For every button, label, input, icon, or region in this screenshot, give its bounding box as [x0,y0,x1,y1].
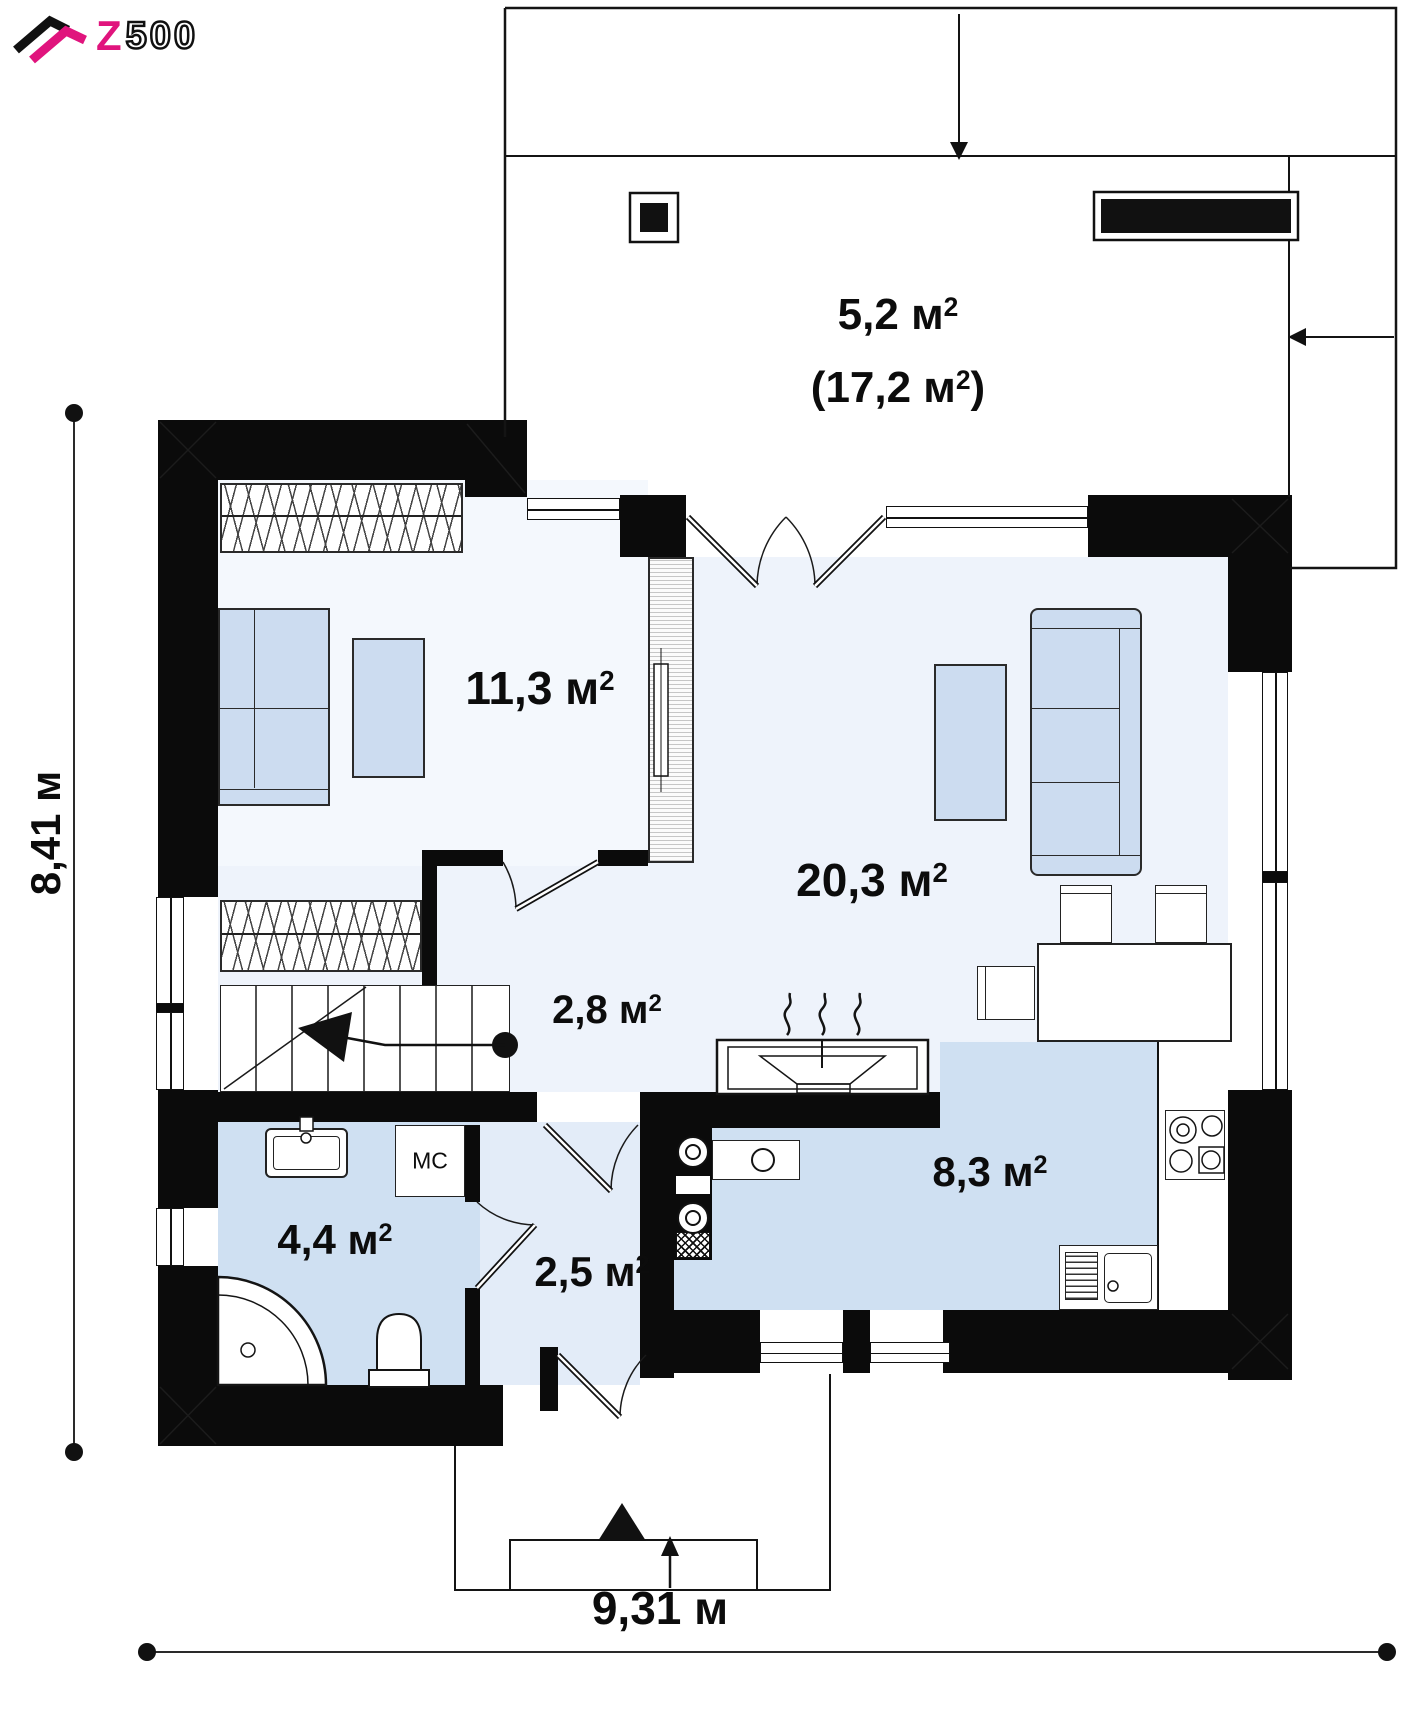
bed-footboard [220,789,328,804]
room-label-bathroom: 4,4 м2 [277,1219,392,1261]
bed [218,608,330,806]
area-value: 20,3 м [796,854,932,906]
roof-vent-core [1101,199,1291,233]
area-sup: 2 [379,1219,393,1247]
z500-logo: Z500 [12,8,198,64]
wall-kitchen-west [640,1092,674,1378]
floor-kitchen-upper [940,1042,1157,1098]
closet-label: МС [412,1150,448,1173]
window-right-2 [1262,882,1288,1090]
roof-slope-arrowhead-icon-2 [1288,328,1306,346]
z500-roof-icon [12,8,92,64]
window-north-1 [527,498,620,520]
stove-ash-box [676,1232,710,1258]
window-mullion-left [156,1004,184,1012]
wall-left-upper [158,420,218,897]
wardrobe [220,483,463,553]
wall-bottom-bathroom [158,1385,503,1446]
window-south-2 [870,1342,950,1363]
roof-vent-outline [1094,192,1298,240]
chimney-core [640,203,668,232]
chimney-outline [630,193,678,242]
area-sup: 2 [648,990,661,1017]
staircase [220,985,510,1092]
sink-drainboard [1065,1252,1098,1300]
porch-outline [455,1374,830,1590]
dining-chair [977,966,1035,1020]
room-label-hall: 2,8 м2 [552,990,662,1030]
chair-backrest [1061,893,1111,894]
window-left-3 [156,1208,184,1266]
window-left-1 [156,897,184,1004]
stove-gap [676,1176,710,1194]
dimension-label-height: 8,41 м [25,771,67,895]
tv-cabinet [648,557,694,863]
porch-arrowhead-icon [661,1536,679,1556]
area-sup: 2 [599,665,614,696]
chair-backrest [985,967,986,1019]
area-sup: 2 [932,857,947,888]
area-post: ) [971,363,986,412]
floor-plan-canvas: 5,2 м2 (17,2 м2) 11,3 м2 20,3 м2 2,8 м2 … [0,0,1403,1713]
logo-letter: Z [96,15,122,57]
window-left-2 [156,1012,184,1090]
area-value: 4,4 м [277,1216,378,1263]
entrance-triangle-icon [598,1503,646,1541]
hall-wardrobe [220,900,422,972]
wall-entry-pier [540,1347,558,1411]
window-right-1 [1262,672,1288,872]
dimension-label-width: 9,31 м [592,1585,728,1631]
wall-bath-door-stub [465,1288,480,1387]
area-sup: 2 [636,1251,650,1279]
room-label-terrace-2: (17,2 м2) [811,366,985,410]
area-value: (17,2 м [811,363,956,412]
wall-hall-south [158,1092,537,1122]
dimension-dot [138,1643,156,1661]
window-north-2 [886,506,1088,528]
sofa-cushion-line-1 [1032,708,1120,709]
chair-backrest [1156,893,1206,894]
wall-bottom-right [943,1310,1292,1373]
area-sup: 2 [956,365,971,395]
sofa [1030,608,1142,876]
wall-closet-side [465,1125,480,1202]
sofa-backrest [1119,628,1120,856]
room-label-living: 20,3 м2 [796,857,948,903]
wall-bedroom-south-b [598,850,648,866]
area-value: 11,3 м [465,662,599,714]
window-south-1 [760,1342,843,1363]
washbasin [265,1128,348,1178]
bed-middle-line [220,708,328,709]
dimension-dot [65,404,83,422]
dimension-dot [1378,1643,1396,1661]
area-value: 5,2 м [838,290,944,339]
nightstand [352,638,425,778]
dimension-dot [65,1443,83,1461]
wall-wardrobe-side [422,866,437,985]
coffee-table [934,664,1007,821]
room-label-vestibule: 2,5 м2 [534,1251,649,1293]
bed-pillow-line [254,610,255,788]
dining-chair [1060,885,1112,943]
sofa-armrest-bottom [1032,855,1140,856]
room-label-terrace-1: 5,2 м2 [838,293,959,337]
washbasin-inner [273,1136,340,1170]
wall-pier-south [843,1310,870,1373]
area-sup: 2 [1034,1151,1048,1179]
area-value: 8,3 м [932,1148,1033,1195]
wall-right-upper [1228,495,1292,672]
wall-pillar-bedroom-ne [465,420,527,497]
area-value: 2,5 м [534,1248,635,1295]
kitchen-sink-unit [1059,1245,1158,1310]
wall-kitchen-north [642,1092,940,1128]
area-sup: 2 [944,292,959,322]
sofa-cushion-line-2 [1032,782,1120,783]
cooktop [1165,1110,1225,1180]
stove-shelf [712,1140,800,1180]
room-label-bedroom: 11,3 м2 [465,665,614,711]
sofa-armrest-top [1032,628,1140,629]
dining-chair [1155,885,1207,943]
sink-basin [1104,1253,1152,1303]
window-mullion-right [1262,872,1288,882]
room-label-kitchen: 8,3 м2 [932,1151,1047,1193]
area-value: 2,8 м [552,988,648,1032]
wall-bedroom-south-a [422,850,503,866]
logo-digits: 500 [126,17,198,55]
roof-slope-arrowhead-icon [950,142,968,160]
dining-table [1037,943,1232,1042]
closet-text: МС [412,1148,448,1174]
wall-pier-doors [620,495,686,557]
